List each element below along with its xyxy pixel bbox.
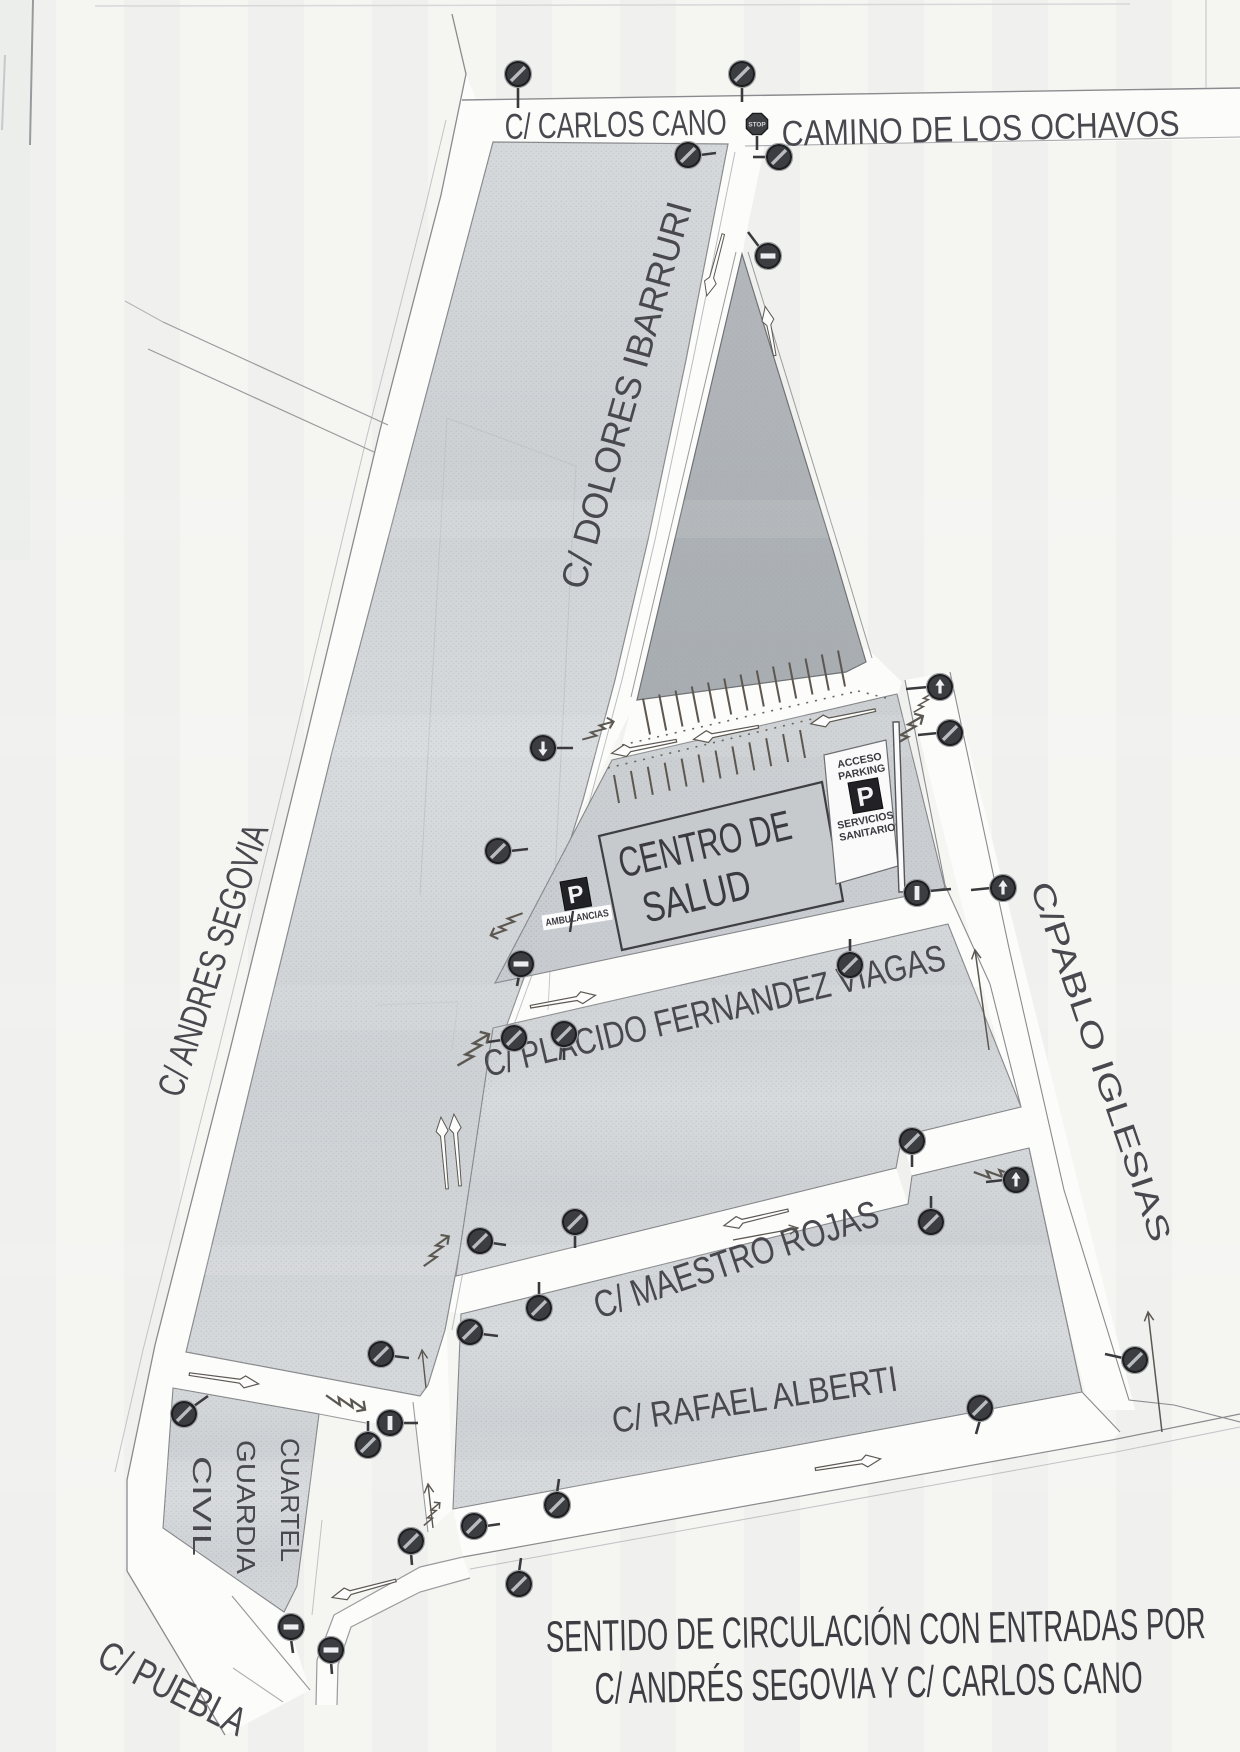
svg-text:STOP: STOP [748,121,766,128]
svg-text:GUARDIA: GUARDIA [231,1440,261,1575]
svg-text:C/ CARLOS CANO: C/ CARLOS CANO [504,101,727,147]
svg-text:CUARTEL: CUARTEL [275,1438,305,1562]
svg-text:CIVIL: CIVIL [187,1456,217,1556]
